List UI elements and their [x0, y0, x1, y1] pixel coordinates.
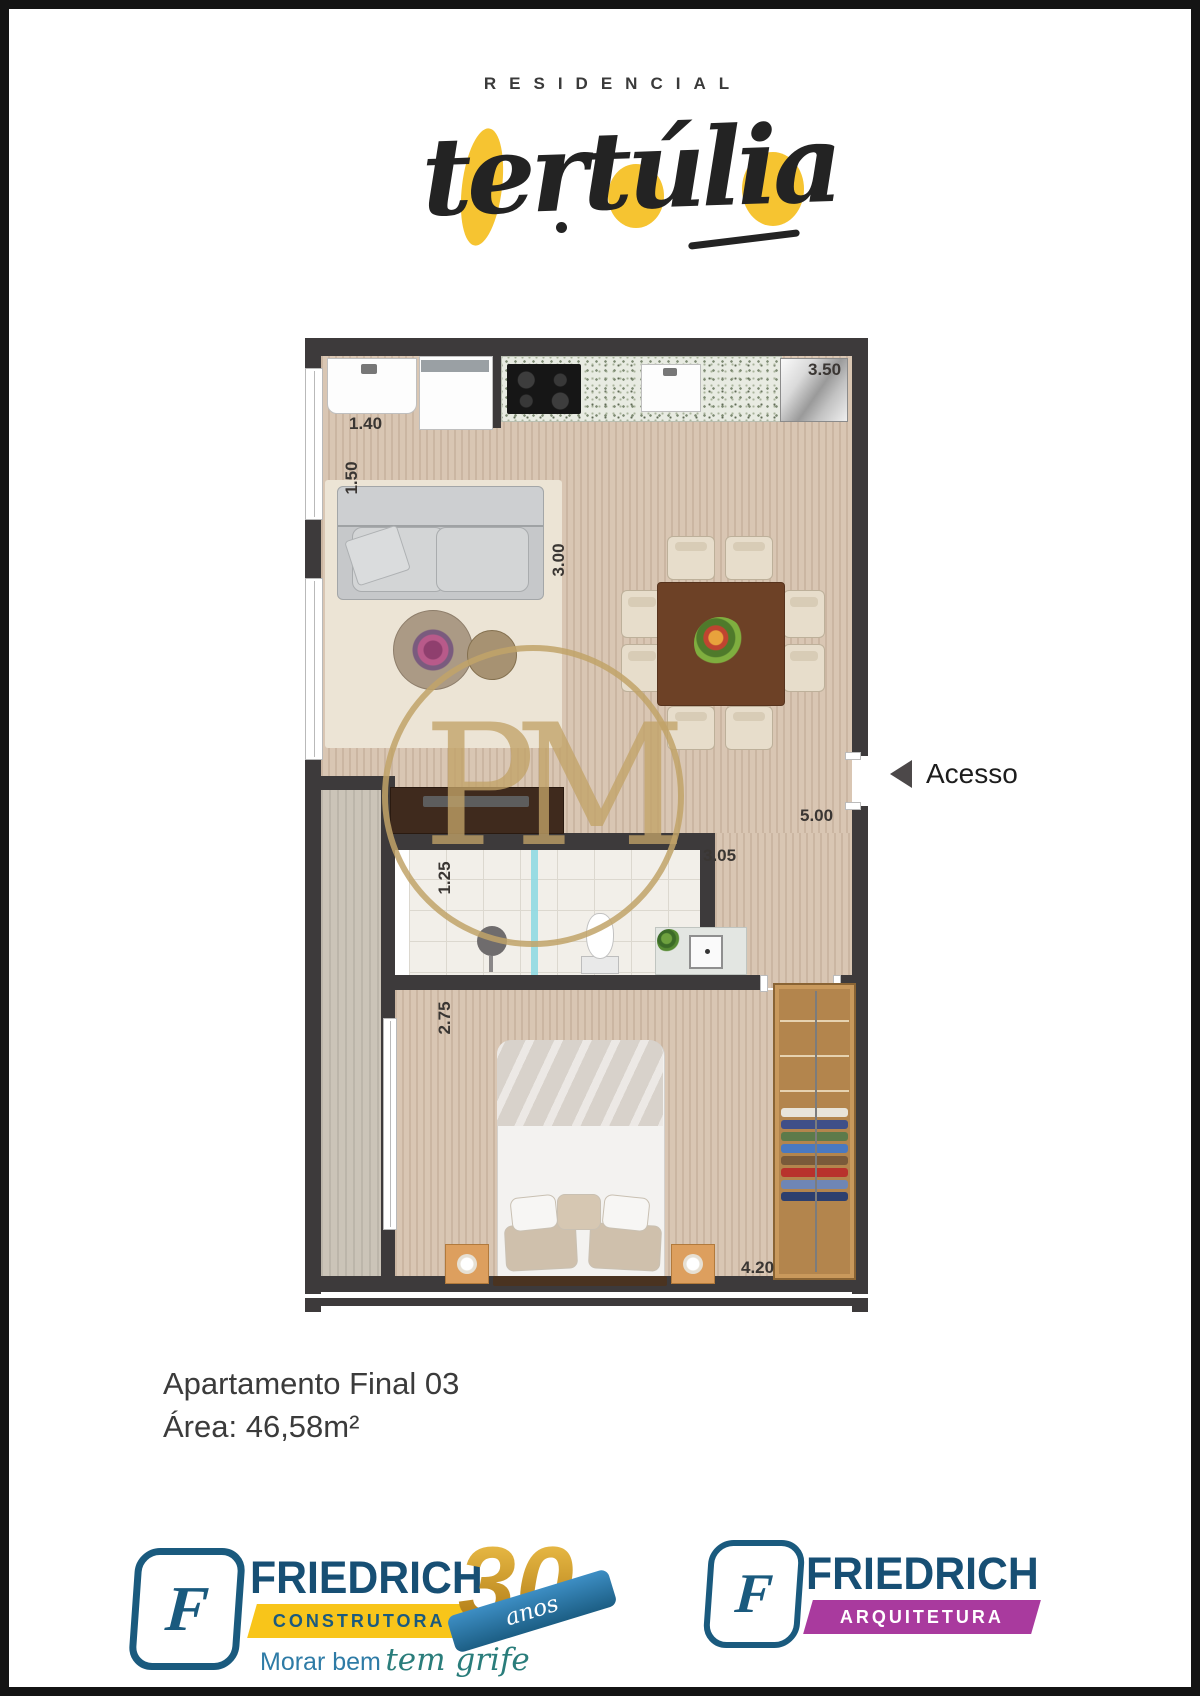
dimension-label: 3.05 [703, 846, 736, 866]
bathroom-sink [689, 935, 723, 969]
side-table [467, 630, 517, 680]
monogram-letter: F [733, 1562, 775, 1626]
dimension-label: 2.75 [436, 986, 454, 1050]
door-jamb [845, 752, 861, 760]
friedrich-arquitetura-monogram-icon: F [702, 1540, 806, 1648]
dimension-label: 3.00 [550, 528, 568, 592]
dining-chair [783, 644, 825, 692]
dimension-label: 1.50 [343, 446, 361, 510]
service-area-floor [321, 783, 381, 1276]
sofa-cushion [436, 527, 528, 592]
wall-segment [715, 975, 760, 990]
friedrich-arquitetura-name: FRIEDRICH [806, 1548, 1039, 1600]
bed-blanket [497, 1040, 663, 1126]
dimension-label: 3.50 [808, 360, 841, 380]
faucet [663, 368, 677, 376]
dimension-label: 1.25 [436, 846, 454, 910]
fruit-bowl [694, 617, 746, 669]
wall-segment [305, 1298, 868, 1306]
washer-lid [421, 360, 489, 372]
shower-arm [489, 956, 493, 972]
tv-console [390, 787, 564, 834]
dining-chair [725, 536, 773, 580]
sofa-backrest [338, 487, 543, 527]
sofa [337, 486, 544, 600]
friedrich-construtora-monogram-icon: F [128, 1548, 247, 1670]
wall-segment [381, 975, 715, 990]
window [305, 368, 323, 520]
wardrobe [773, 983, 856, 1280]
dimension-label: 4.20 [741, 1258, 774, 1278]
access-marker: Acesso [890, 758, 1018, 790]
flyer-page: RESIDENCIAL tertúlia [0, 0, 1200, 1696]
arquitetura-label: ARQUITETURA [840, 1607, 1004, 1628]
apartment-details: Apartamento Final 03 Área: 46,58m² [163, 1362, 459, 1448]
construtora-label: CONSTRUTORA [273, 1611, 446, 1632]
dining-chair [667, 536, 715, 580]
cooktop [507, 364, 581, 414]
window [305, 578, 323, 760]
brand-script-dot [556, 222, 567, 233]
entry-door-opening [852, 756, 868, 806]
nightstand [445, 1244, 489, 1284]
plant [657, 929, 681, 953]
bed-pillow [509, 1194, 558, 1233]
toilet [586, 913, 614, 959]
brand-residencial-text: RESIDENCIAL [0, 74, 1200, 94]
dining-chair [783, 590, 825, 638]
shower-glass-panel [531, 850, 538, 975]
floor-plan: 1.40 1.50 3.00 3.50 5.00 1.25 3.05 2.75 … [305, 338, 868, 1312]
apartment-title: Apartamento Final 03 [163, 1362, 459, 1405]
nightstand [671, 1244, 715, 1284]
dimension-label: 5.00 [800, 806, 833, 826]
door-jamb [845, 802, 861, 810]
construtora-tagline: Morar bem tem grife [260, 1642, 530, 1678]
arquitetura-banner: ARQUITETURA [803, 1600, 1041, 1634]
shower-head [477, 926, 507, 956]
wardrobe-rod [815, 991, 817, 1272]
access-arrow-icon [890, 760, 912, 788]
construtora-banner: CONSTRUTORA [247, 1604, 472, 1638]
headboard [493, 1276, 667, 1286]
apartment-area: Área: 46,58m² [163, 1405, 459, 1448]
bed-pillow [557, 1194, 601, 1230]
bed-pillow [601, 1194, 650, 1233]
friedrich-construtora-name: FRIEDRICH [250, 1552, 483, 1604]
faucet [361, 364, 377, 374]
access-label: Acesso [926, 758, 1018, 790]
tv [423, 796, 529, 807]
coffee-table [393, 610, 473, 690]
tagline-plain: Morar bem [260, 1648, 381, 1676]
monogram-letter: F [163, 1572, 211, 1646]
window [383, 1018, 397, 1230]
door-jamb [760, 975, 768, 992]
wall-segment [305, 338, 868, 356]
dining-chair [725, 706, 773, 750]
dimension-label: 1.40 [349, 414, 382, 434]
dining-chair [667, 706, 715, 750]
